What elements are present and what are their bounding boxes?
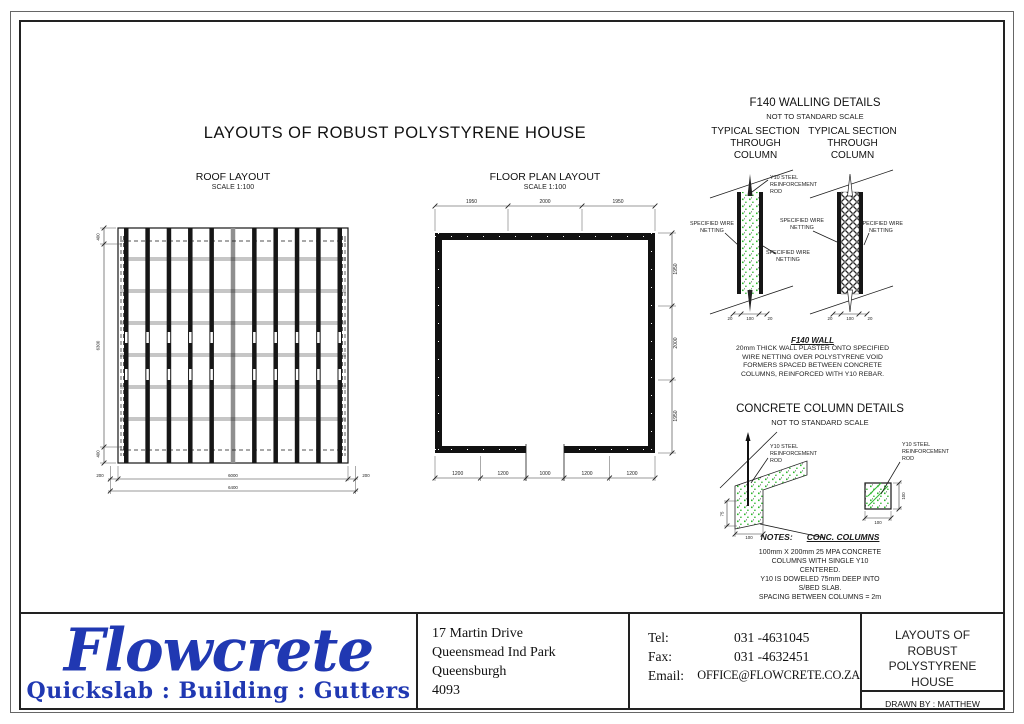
walling-details-subtitle: NOT TO STANDARD SCALE	[690, 112, 940, 121]
roof-layout-scale: SCALE 1:100	[88, 184, 378, 191]
dim-label: 6300	[96, 340, 101, 350]
address-cell: 17 Martin Drive Queensmead Ind Park Quee…	[418, 614, 630, 710]
dim-label: 100	[874, 520, 882, 525]
dim-label: 1000	[539, 471, 550, 477]
flowcrete-logo: Flowcrete	[64, 621, 373, 678]
svg-text:100: 100	[846, 316, 854, 321]
dim-label: 200	[96, 473, 104, 478]
rod-label: Y10 STEEL REINFORCEMENT ROD	[770, 175, 818, 195]
page-title: LAYOUTS OF ROBUST POLYSTYRENE HOUSE	[95, 124, 695, 143]
svg-text:REINFORCEMENT: REINFORCEMENT	[902, 449, 950, 455]
svg-text:Y10 STEEL: Y10 STEEL	[902, 442, 930, 448]
netting-label: SPECIFIED WIRE NETTING	[690, 221, 734, 234]
rebar-rod	[746, 432, 751, 441]
address-line: Queensburgh	[432, 662, 628, 681]
svg-text:20: 20	[728, 316, 733, 321]
floor-dimensions: 1950 2000 1950 1950 2000 1950 1200 1200 …	[433, 199, 679, 481]
svg-text:NETTING: NETTING	[869, 228, 893, 234]
dim-label: 6000	[228, 473, 238, 478]
dim-label: 1200	[581, 471, 592, 477]
address-line: Queensmead Ind Park	[432, 643, 628, 662]
drawn-by: DRAWN BY : MATTHEW ROBINSON	[862, 690, 1003, 716]
fax-label: Fax:	[648, 647, 706, 666]
dim-label: 75	[720, 511, 725, 516]
tel-label: Tel:	[648, 628, 706, 647]
dim-label: 1950	[673, 410, 679, 421]
roof-layout-title-text: ROOF LAYOUT	[88, 171, 378, 183]
address-line: 17 Martin Drive	[432, 624, 628, 643]
netting-label: SPECIFIED WIRE NETTING	[780, 218, 824, 231]
svg-text:ROD: ROD	[902, 456, 914, 462]
dim-label: 400	[96, 450, 101, 458]
typical-section-heading-2: TYPICAL SECTION THROUGH COLUMN	[800, 126, 905, 162]
dim-label: 1950	[673, 263, 679, 274]
svg-text:ROD: ROD	[770, 458, 782, 464]
netting-label: SPECIFIED WIRE NETTING	[766, 250, 810, 263]
dim-label: 2000	[673, 337, 679, 348]
svg-text:REINFORCEMENT: REINFORCEMENT	[770, 451, 818, 457]
svg-text:SPECIFIED WIRE: SPECIFIED WIRE	[859, 221, 903, 227]
notes-label: NOTES:	[761, 532, 793, 542]
dim-label: 200	[362, 473, 370, 478]
dim-label: 400	[96, 233, 101, 241]
svg-text:ROD: ROD	[770, 189, 782, 195]
svg-text:Y10 STEEL: Y10 STEEL	[770, 175, 798, 181]
svg-text:NETTING: NETTING	[790, 225, 814, 231]
netting-label: SPECIFIED WIRE NETTING	[859, 221, 903, 234]
svg-text:20: 20	[768, 316, 773, 321]
column-details-title: CONCRETE COLUMN DETAILS	[720, 403, 920, 415]
notes-heading: CONC. COLUMNS	[807, 532, 880, 542]
drawing-sheet: LAYOUTS OF ROBUST POLYSTYRENE HOUSE ROOF…	[0, 0, 1024, 724]
floor-plan-title-text: FLOOR PLAN LAYOUT	[400, 171, 690, 183]
svg-text:SPECIFIED WIRE: SPECIFIED WIRE	[690, 221, 734, 227]
column-details-subtitle: NOT TO STANDARD SCALE	[720, 418, 920, 427]
svg-text:NETTING: NETTING	[700, 228, 724, 234]
svg-text:SPECIFIED WIRE: SPECIFIED WIRE	[766, 250, 810, 256]
slab-edge-section	[735, 461, 807, 529]
f140-wall-note: F140 WALL 20mm THICK WALL PLASTER ONTO S…	[735, 336, 890, 379]
svg-text:NETTING: NETTING	[776, 257, 800, 263]
polystyrene-infill	[841, 192, 859, 294]
door-opening	[526, 445, 564, 454]
title-block: Flowcrete Quickslab : Building : Gutters…	[21, 612, 1003, 710]
section-dimensions: 20 100 20 20 100 20	[728, 314, 873, 321]
dim-label: 100	[901, 492, 906, 500]
tel-value: 031 -4631045	[734, 628, 809, 647]
rod-label: Y10 STEEL REINFORCEMENT ROD	[770, 444, 818, 464]
dim-label: 6400	[228, 485, 238, 490]
address-line: 4093	[432, 681, 628, 700]
dim-label: 2000	[539, 199, 550, 205]
dim-label: 1200	[626, 471, 637, 477]
svg-text:20: 20	[868, 316, 873, 321]
typical-section-heading-1: TYPICAL SECTION THROUGH COLUMN	[703, 126, 808, 162]
column-details-drawing: Y10 STEEL REINFORCEMENT ROD 75 100 Y10 S…	[715, 428, 1015, 540]
notes-block: NOTES: CONC. COLUMNS 100mm X 200mm 25 MP…	[740, 532, 900, 602]
email-label: Email:	[648, 666, 697, 685]
fax-value: 031 -4632451	[734, 647, 809, 666]
floor-plan-drawing: 1950 2000 1950 1950 2000 1950 1200 1200 …	[400, 188, 690, 488]
svg-text:Y10 STEEL: Y10 STEEL	[770, 444, 798, 450]
dim-label: 1950	[612, 199, 623, 205]
svg-text:REINFORCEMENT: REINFORCEMENT	[770, 182, 818, 188]
svg-text:SPECIFIED WIRE: SPECIFIED WIRE	[780, 218, 824, 224]
dim-label: 1200	[452, 471, 463, 477]
roof-layout-drawing: 400 6300 400 200 6000 200 6400	[88, 220, 378, 505]
svg-text:100: 100	[746, 316, 754, 321]
contact-cell: Tel: 031 -4631045 Fax: 031 -4632451 Emai…	[630, 614, 862, 710]
wall-sections-drawing: Y10 STEEL REINFORCEMENT ROD SPECIFIED WI…	[685, 162, 1005, 337]
roof-layout-title: ROOF LAYOUT SCALE 1:100	[88, 171, 378, 191]
email-value: OFFICE@FLOWCRETE.CO.ZA	[697, 666, 860, 685]
dim-label: 1200	[497, 471, 508, 477]
svg-text:20: 20	[828, 316, 833, 321]
concrete-column-infill	[741, 192, 759, 294]
walling-details-title: F140 WALLING DETAILS	[690, 97, 940, 109]
logo-cell: Flowcrete Quickslab : Building : Gutters	[21, 614, 418, 710]
dim-label: 1950	[466, 199, 477, 205]
drawing-title: LAYOUTS OF ROBUST POLYSTYRENE HOUSE	[862, 614, 1003, 690]
rod-label: Y10 STEEL REINFORCEMENT ROD	[902, 442, 950, 462]
f140-wall-note-title: F140 WALL	[735, 336, 890, 345]
drawing-title-cell: LAYOUTS OF ROBUST POLYSTYRENE HOUSE DRAW…	[862, 614, 1003, 710]
